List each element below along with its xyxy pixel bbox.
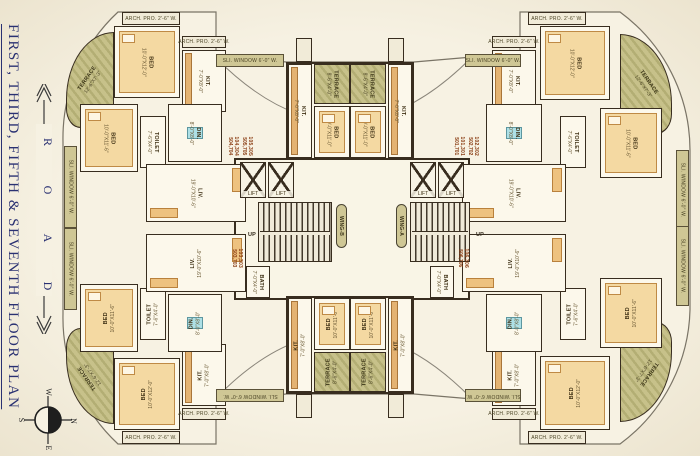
- din-tl-dims: 8'-0"X8'-0": [189, 121, 195, 144]
- kit-br-dims: 7'-0"X8'-0": [514, 363, 520, 386]
- sliwindow-band-bottom-left-label: SLI. WINDOW 6'-0" W.: [223, 393, 278, 399]
- compass-south: S: [18, 418, 26, 422]
- bed2-bl-dims: 10'-0"X11'-6": [109, 304, 115, 332]
- kit-tr-dims: 7'-0"X8'-0": [508, 69, 514, 92]
- terrace-tr-label: TERRACE: [638, 69, 659, 96]
- terrace-center-top-right-dims: 8'-6"X4'-0": [362, 70, 368, 98]
- bed2-tr: BED10'-0"X11'-6": [600, 108, 662, 178]
- toilet-bl: TOILET7'-6"X4'-0": [140, 288, 166, 340]
- bed-center-bottom-right-label: BED: [362, 310, 369, 338]
- bed2-br-label: BED: [625, 299, 632, 327]
- terrace-center-top-right: TERRACE8'-6"X4'-0": [350, 64, 386, 104]
- bed1-tl: BED10'-0"X12'-0": [114, 26, 180, 98]
- flat-number-101-label: 101,301: [459, 136, 465, 155]
- din-bl-label: DIN.: [189, 311, 196, 334]
- compass-east: E: [44, 446, 53, 451]
- bath-right: BATH7'-0"X4'-0": [430, 266, 454, 298]
- sliwindow-bl-label: SLI. WINDOW 6'-0" W.: [68, 242, 74, 297]
- sliwindow-bl: SLI. WINDOW 6'-0" W.: [64, 228, 77, 310]
- terrace-tl-dims: 12'-6"X7'-3": [82, 69, 103, 95]
- bath-left: BATH7'-0"X4'-0": [246, 266, 270, 298]
- sliwindow-tl: SLI. WINDOW 6'-0" W.: [64, 146, 77, 228]
- archpro2-tr-label: ARCH. PRO. 2'-6" W.: [488, 39, 540, 45]
- terrace-center-bottom-right-label: TERRACE: [362, 358, 369, 386]
- archpro2-tl-label: ARCH. PRO. 2'-6" W.: [178, 39, 230, 45]
- bed1-br: BED10'-0"X12'-0": [540, 356, 610, 430]
- bed-center-bottom-right-dims: 10'-0"X11'-0": [368, 310, 374, 338]
- sliwindow-band-top-right: SLI. WINDOW 6'-0" W.: [465, 54, 521, 67]
- kit-tr-label: KIT.: [514, 69, 521, 92]
- din-tr-label: DIN.: [514, 121, 521, 144]
- wing-a-label-label: WING-A: [399, 216, 405, 236]
- wing-b-label: WING-B: [336, 204, 347, 248]
- bed2-bl-label: BED: [103, 304, 110, 332]
- bed-center-top-left-dims: 10'-0"X11'-0": [326, 118, 332, 146]
- flat-number-104: 104,304504,704: [226, 124, 240, 168]
- archpro-tl: ARCH. PRO. 2'-6" W.: [122, 12, 180, 25]
- bed-center-top-right: BED10'-0"X11'-0": [350, 106, 386, 158]
- kit-center-bottom-left: KIT.7'-0"X8'-0": [288, 298, 312, 392]
- kit-center-top-left-label: KIT.: [300, 99, 307, 122]
- flat-number-105: 105,305505,705: [240, 124, 254, 168]
- terrace-center-bottom-left: TERRACE8'-6"X4'-0": [314, 352, 350, 392]
- bed1-br-dims: 10'-0"X12'-0": [575, 379, 581, 408]
- liv-br: LIV.19'-0"X10'-6": [462, 234, 566, 292]
- toilet-br: TOILET7'-6"X4'-0": [560, 288, 586, 340]
- toilet-tl-dims: 7'-6"X4'-0": [147, 130, 153, 153]
- bed2-tl-dims: 10'-0"X11'-6": [103, 124, 109, 152]
- archpro-tr: ARCH. PRO. 2'-6" W.: [528, 12, 586, 25]
- flat-number-103-dims: 503,703: [231, 248, 237, 267]
- kit-center-top-left: KIT.7'-0"X8'-0": [288, 64, 312, 158]
- toilet-bl-label: TOILET: [147, 302, 154, 325]
- bed2-tl: BED10'-0"X11'-6": [80, 104, 138, 172]
- flat-number-104-label: 104,304: [233, 136, 239, 155]
- bed2-bl: BED10'-0"X11'-6": [80, 284, 138, 352]
- archpro2-bl-label: ARCH. PRO. 2'-6" W.: [178, 411, 230, 417]
- staircase-left: [258, 202, 332, 262]
- din-br-dims: 8'-0"X8'-0": [514, 311, 520, 334]
- compass-north: N: [69, 418, 78, 424]
- terrace-bl-dims: 12'-6"X7'-3": [82, 361, 103, 387]
- floor-plan-canvas: TERRACE12'-6"X7'-3"ARCH. PRO. 2'-6" W.BE…: [0, 0, 700, 456]
- liv-tl: LIV.19'-0"X10'-6": [146, 164, 246, 222]
- liv-br-dims: 19'-0"X10'-6": [514, 249, 520, 278]
- flat-number-106-dims: 506,706: [457, 248, 463, 267]
- lift-left-1-label: LIFT: [241, 191, 265, 197]
- archpro2-br-label: ARCH. PRO. 2'-6" W.: [488, 411, 540, 417]
- duct-bottom-right: [388, 394, 404, 418]
- duct-top-left: [296, 38, 312, 62]
- bath-right-label: BATH: [442, 270, 449, 293]
- sliwindow-band-bottom-left: SLI. WINDOW 6'-0" W.: [216, 389, 284, 402]
- toilet-br-label: TOILET: [567, 302, 574, 325]
- compass-needle: [48, 407, 61, 433]
- bed-center-bottom-left: BED10'-0"X11'-0": [314, 298, 350, 350]
- road-letter-a: A: [41, 234, 55, 243]
- kit-center-top-right-dims: 7'-0"X8'-0": [394, 99, 400, 122]
- up-label-right: UP: [472, 230, 488, 240]
- liv-bl-dims: 19'-0"X10'-6": [196, 249, 202, 278]
- terrace-center-bottom-right-dims: 8'-6"X4'-0": [368, 358, 374, 386]
- archpro-bl: ARCH. PRO. 2'-6" W.: [122, 431, 180, 444]
- sliwindow-br: SLI. WINDOW 6'-0" W.: [676, 226, 689, 306]
- sliwindow-tl-label: SLI. WINDOW 6'-0" W.: [68, 160, 74, 215]
- terrace-tl-label: TERRACE: [77, 65, 98, 92]
- din-bl: DIN.8'-0"X8'-0": [168, 294, 222, 352]
- archpro-tl-label: ARCH. PRO. 2'-6" W.: [125, 16, 177, 22]
- flat-number-106: 106,306506,706: [456, 236, 470, 280]
- archpro-br-label: ARCH. PRO. 2'-6" W.: [531, 435, 583, 441]
- terrace-br-label: TERRACE: [638, 360, 659, 387]
- compass-west: W: [44, 388, 53, 396]
- sliwindow-band-bottom-right: SLI. WINDOW 6'-0" W.: [465, 389, 521, 402]
- bed-center-top-right-label: BED: [368, 118, 375, 146]
- din-bl-dims: 8'-0"X8'-0": [195, 311, 201, 334]
- terrace-tr-dims: 12'-6"X7'-3": [633, 73, 654, 99]
- toilet-tl: TOILET7'-6"X4'-0": [140, 116, 166, 168]
- bed1-tl-label: BED: [147, 48, 154, 77]
- flat-number-106-label: 106,306: [463, 248, 469, 267]
- up-label-left-label: UP: [248, 232, 256, 239]
- archpro2-bl: ARCH. PRO. 2'-6" W.: [182, 408, 226, 420]
- toilet-tl-label: TOILET: [153, 130, 160, 153]
- bed1-tr-label: BED: [575, 49, 582, 78]
- kit-center-bottom-left-label: KIT.: [294, 333, 301, 356]
- archpro-br: ARCH. PRO. 2'-6" W.: [528, 431, 586, 444]
- liv-br-label: LIV.: [508, 249, 515, 278]
- terrace-center-bottom-right: TERRACE8'-6"X4'-0": [350, 352, 386, 392]
- lift-right-1-label: LIFT: [411, 191, 435, 197]
- archpro2-tl: ARCH. PRO. 2'-6" W.: [182, 36, 226, 48]
- terrace-center-top-left-dims: 8'-6"X4'-0": [326, 70, 332, 98]
- bed1-tl-dims: 10'-0"X12'-0": [141, 48, 147, 77]
- bath-left-dims: 7'-0"X4'-0": [252, 270, 258, 293]
- liv-tr: LIV.19'-0"X10'-6": [462, 164, 566, 222]
- kit-center-top-left-dims: 7'-0"X8'-0": [294, 99, 300, 122]
- sliwindow-tr: SLI. WINDOW 6'-0" W.: [676, 150, 689, 230]
- kit-bl-dims: 7'-0"X8'-0": [204, 363, 210, 386]
- terrace-center-top-left: TERRACE8'-6"X4'-0": [314, 64, 350, 104]
- bed1-bl-dims: 10'-0"X12'-0": [147, 380, 153, 409]
- bed1-tr-dims: 10'-0"X12'-0": [569, 49, 575, 78]
- bed2-br-dims: 10'-0"X11'-6": [631, 299, 637, 327]
- duct-top-right: [388, 38, 404, 62]
- flat-number-103-label: 103,303: [237, 248, 243, 267]
- up-label-right-label: UP: [476, 232, 484, 239]
- flat-number-105-label: 105,305: [247, 136, 253, 155]
- page-title: FIRST, THIRD, FIFTH & SEVENTH FLOOR PLAN: [4, 24, 21, 416]
- archpro-tr-label: ARCH. PRO. 2'-6" W.: [531, 16, 583, 22]
- archpro2-br: ARCH. PRO. 2'-6" W.: [492, 408, 536, 420]
- terrace-center-top-right-label: TERRACE: [368, 70, 375, 98]
- kit-center-bottom-right-label: KIT.: [394, 333, 401, 356]
- liv-tl-label: LIV.: [196, 179, 203, 208]
- wing-b-label-label: WING-B: [339, 216, 345, 236]
- lift-left-2: LIFT: [268, 162, 294, 198]
- road-marker: R O A D: [28, 84, 58, 334]
- kit-tl-dims: 7'-0"X8'-0": [198, 69, 204, 92]
- kit-center-bottom-left-dims: 7'-0"X8'-0": [300, 333, 306, 356]
- archpro-bl-label: ARCH. PRO. 2'-6" W.: [125, 435, 177, 441]
- up-label-left: UP: [244, 230, 260, 240]
- sliwindow-band-top-left: SLI. WINDOW 6'-0" W.: [216, 54, 284, 67]
- lift-right-2-label: LIFT: [439, 191, 463, 197]
- liv-tr-label: LIV.: [514, 179, 521, 208]
- din-br: DIN.8'-0"X8'-0": [486, 294, 542, 352]
- toilet-tr-label: TOILET: [573, 130, 580, 153]
- flat-number-102-dims: 502,702: [467, 136, 473, 155]
- bed-center-bottom-left-dims: 10'-0"X11'-0": [332, 310, 338, 338]
- archpro2-tr: ARCH. PRO. 2'-6" W.: [492, 36, 536, 48]
- bed2-tl-label: BED: [109, 124, 116, 152]
- wing-a-label: WING-A: [396, 204, 407, 248]
- liv-bl-label: LIV.: [190, 249, 197, 278]
- bed1-tr: BED10'-0"X12'-0": [540, 26, 610, 100]
- flat-number-101-dims: 501,701: [453, 136, 459, 155]
- din-br-label: DIN.: [508, 311, 515, 334]
- bed-center-top-left: BED10'-0"X11'-0": [314, 106, 350, 158]
- terrace-center-top-left-label: TERRACE: [332, 70, 339, 98]
- din-tr: DIN.8'-0"X8'-0": [486, 104, 542, 162]
- sliwindow-band-bottom-right-label: SLI. WINDOW 6'-0" W.: [466, 393, 521, 399]
- liv-tl-dims: 19'-0"X10'-6": [190, 179, 196, 208]
- terrace-center-bottom-left-dims: 8'-6"X4'-0": [332, 358, 338, 386]
- bed1-bl-label: BED: [141, 380, 148, 409]
- compass-rose: W N S E: [18, 388, 78, 452]
- flat-number-102: 102,302502,702: [466, 124, 480, 168]
- road-letter-d: D: [41, 282, 55, 291]
- flat-number-103: 103,303503,703: [230, 236, 244, 280]
- bed-center-top-left-label: BED: [332, 118, 339, 146]
- liv-tr-dims: 19'-0"X10'-6": [508, 179, 514, 208]
- sliwindow-band-top-left-label: SLI. WINDOW 6'-0" W.: [223, 58, 278, 64]
- kit-center-top-right: KIT.7'-0"X8'-0": [388, 64, 412, 158]
- road-letter-o: O: [41, 186, 55, 195]
- bed2-tr-label: BED: [631, 129, 638, 157]
- bed1-br-label: BED: [569, 379, 576, 408]
- kit-br-label: KIT.: [508, 363, 515, 386]
- lift-left-2-label: LIFT: [269, 191, 293, 197]
- toilet-tr-dims: 7'-6"X4'-0": [567, 130, 573, 153]
- flat-number-102-label: 102,302: [473, 136, 479, 155]
- terrace-center-bottom-left-label: TERRACE: [326, 358, 333, 386]
- kit-tl-label: KIT.: [204, 69, 211, 92]
- bed-center-bottom-right: BED10'-0"X11'-0": [350, 298, 386, 350]
- bath-left-label: BATH: [258, 270, 265, 293]
- bed2-br: BED10'-0"X11'-6": [600, 278, 662, 348]
- kit-center-top-right-label: KIT.: [400, 99, 407, 122]
- din-tl-label: DIN.: [195, 121, 202, 144]
- bed1-bl: BED10'-0"X12'-0": [114, 358, 180, 430]
- kit-center-bottom-right: KIT.7'-0"X8'-0": [388, 298, 412, 392]
- terrace-bl-label: TERRACE: [77, 364, 98, 391]
- flat-number-105-dims: 505,705: [241, 136, 247, 155]
- sliwindow-br-label: SLI. WINDOW 6'-0" W.: [680, 239, 686, 294]
- terrace-br-dims: 12'-6"X7'-3": [633, 357, 654, 383]
- flat-number-104-dims: 504,704: [227, 136, 233, 155]
- lift-right-1: LIFT: [410, 162, 436, 198]
- toilet-tr: TOILET7'-6"X4'-0": [560, 116, 586, 168]
- bed-center-top-right-dims: 10'-0"X11'-0": [362, 118, 368, 146]
- duct-bottom-left: [296, 394, 312, 418]
- bed2-tr-dims: 10'-0"X11'-6": [625, 129, 631, 157]
- kit-center-bottom-right-dims: 7'-0"X8'-0": [400, 333, 406, 356]
- toilet-br-dims: 7'-6"X4'-0": [573, 302, 579, 325]
- din-tr-dims: 8'-0"X8'-0": [508, 121, 514, 144]
- flat-number-101: 101,301501,701: [452, 124, 466, 168]
- sliwindow-tr-label: SLI. WINDOW 6'-0" W.: [680, 163, 686, 218]
- bed-center-bottom-left-label: BED: [326, 310, 333, 338]
- din-tl: DIN.8'-0"X8'-0": [168, 104, 222, 162]
- plan-items-layer: TERRACE12'-6"X7'-3"ARCH. PRO. 2'-6" W.BE…: [0, 0, 700, 456]
- bath-right-dims: 7'-0"X4'-0": [436, 270, 442, 293]
- sliwindow-band-top-right-label: SLI. WINDOW 6'-0" W.: [466, 58, 521, 64]
- road-letter-r: R: [41, 138, 55, 146]
- kit-bl-label: KIT.: [198, 363, 205, 386]
- toilet-bl-dims: 7'-6"X4'-0": [153, 302, 159, 325]
